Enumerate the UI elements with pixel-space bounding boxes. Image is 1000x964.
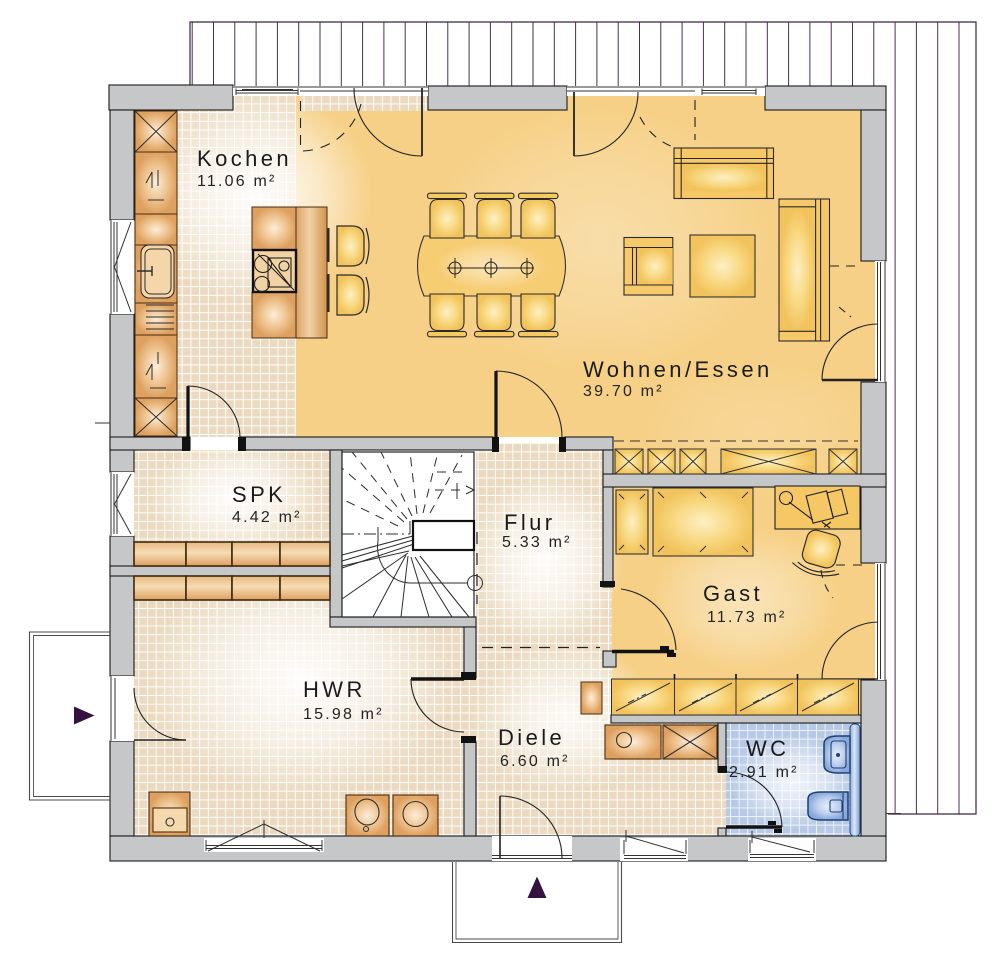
svg-text:15.98 m²: 15.98 m² xyxy=(303,706,384,723)
svg-text:Wohnen/Essen: Wohnen/Essen xyxy=(583,357,773,382)
svg-text:11.06 m²: 11.06 m² xyxy=(197,173,277,190)
svg-text:5.33 m²: 5.33 m² xyxy=(502,534,572,551)
svg-text:11.73 m²: 11.73 m² xyxy=(707,609,787,626)
svg-text:Kochen: Kochen xyxy=(197,146,292,171)
svg-text:Flur: Flur xyxy=(504,510,556,535)
svg-text:HWR: HWR xyxy=(303,677,366,702)
svg-text:39.70 m²: 39.70 m² xyxy=(583,383,664,400)
svg-text:WC: WC xyxy=(746,736,789,761)
svg-text:4.42 m²: 4.42 m² xyxy=(232,509,302,526)
svg-text:2.91 m²: 2.91 m² xyxy=(729,764,799,781)
svg-text:6.60 m²: 6.60 m² xyxy=(500,753,570,770)
svg-text:Gast: Gast xyxy=(703,581,763,606)
svg-text:Diele: Diele xyxy=(498,725,565,750)
svg-text:SPK: SPK xyxy=(232,482,286,507)
